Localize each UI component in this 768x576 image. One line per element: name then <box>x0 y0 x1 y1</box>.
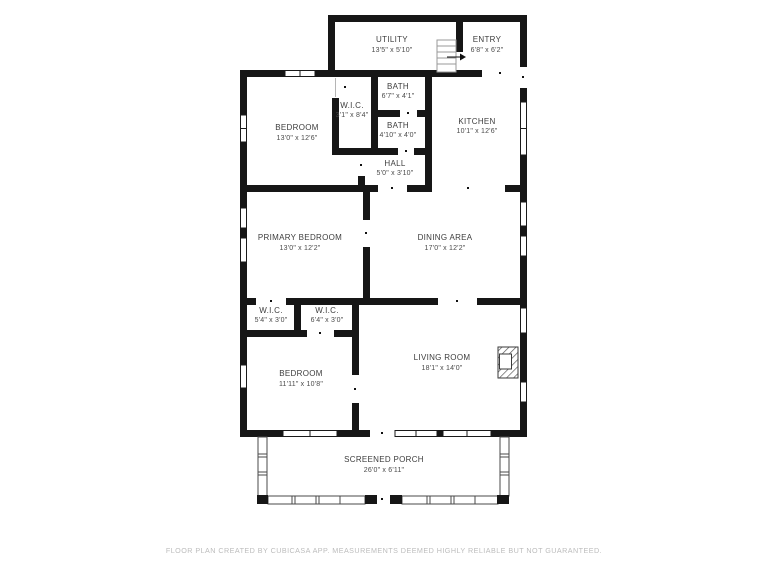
room-dims-living: 18'1" x 14'0" <box>422 365 463 372</box>
room-label-kitchen: KITCHEN <box>458 117 495 126</box>
room-dims-bedroom1: 13'0" x 12'6" <box>277 135 318 142</box>
room-dims-wic2: 5'4" x 3'0" <box>255 317 288 324</box>
footer-disclaimer: FLOOR PLAN CREATED BY CUBICASA APP. MEAS… <box>166 546 602 555</box>
room-label-bedroom2: BEDROOM <box>279 369 322 378</box>
room-label-wic3: W.I.C. <box>315 306 339 315</box>
room-dims-bath2: 4'10" x 4'0" <box>380 132 417 139</box>
room-dims-kitchen: 10'1" x 12'6" <box>457 128 498 135</box>
room-label-entry: ENTRY <box>473 35 502 44</box>
room-labels: UTILITY 13'5" x 5'10" ENTRY 6'8" x 6'2" … <box>255 35 504 474</box>
room-dims-utility: 13'5" x 5'10" <box>372 47 413 54</box>
room-label-bath2: BATH <box>387 121 409 130</box>
room-label-wic1: W.I.C. <box>340 101 364 110</box>
floor-plan-page: UTILITY 13'5" x 5'10" ENTRY 6'8" x 6'2" … <box>0 0 768 576</box>
room-dims-bath1: 6'7" x 4'1" <box>382 93 415 100</box>
room-dims-porch: 26'0" x 6'11" <box>364 467 405 474</box>
room-label-primary: PRIMARY BEDROOM <box>258 233 342 242</box>
room-label-bedroom1: BEDROOM <box>275 123 318 132</box>
room-dims-primary: 13'0" x 12'2" <box>280 245 321 252</box>
floor-plan: UTILITY 13'5" x 5'10" ENTRY 6'8" x 6'2" … <box>0 0 768 576</box>
room-dims-dining: 17'0" x 12'2" <box>425 245 466 252</box>
room-dims-bedroom2: 11'11" x 10'8" <box>279 381 323 388</box>
room-label-utility: UTILITY <box>376 35 408 44</box>
fireplace <box>498 347 518 378</box>
room-dims-wic1: 3'1" x 8'4" <box>336 112 369 119</box>
room-dims-entry: 6'8" x 6'2" <box>471 47 504 54</box>
room-label-wic2: W.I.C. <box>259 306 283 315</box>
room-label-bath1: BATH <box>387 82 409 91</box>
room-dims-wic3: 6'4" x 3'0" <box>311 317 344 324</box>
room-label-porch: SCREENED PORCH <box>344 455 424 464</box>
room-dims-hall: 5'0" x 3'10" <box>377 170 414 177</box>
room-label-living: LIVING ROOM <box>414 353 471 362</box>
room-label-hall: HALL <box>384 159 405 168</box>
room-label-dining: DINING AREA <box>418 233 473 242</box>
